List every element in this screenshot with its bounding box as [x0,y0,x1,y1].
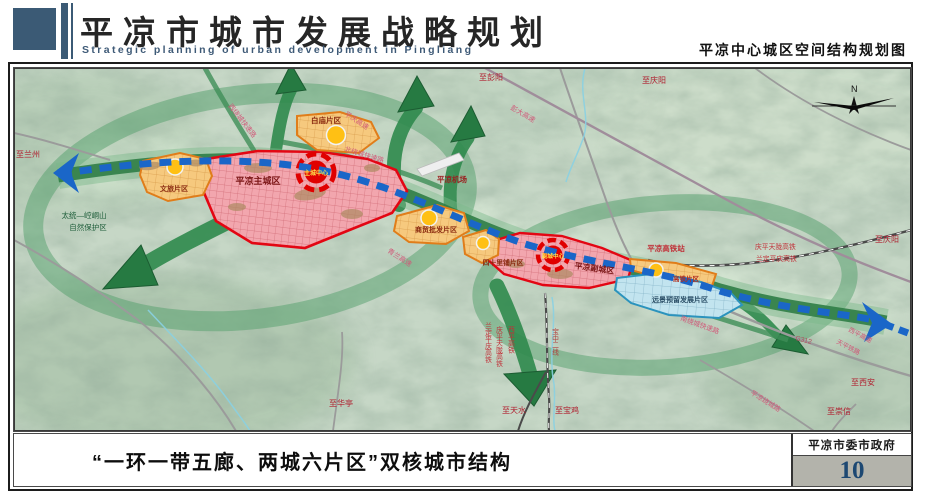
document-header: 平凉市城市发展战略规划 Strategic planning of urban … [0,0,925,62]
label-nature-reserve-2: 自然保护区 [69,222,107,232]
page-number: 10 [793,456,911,486]
label-to-huating: 至华亭 [329,398,353,408]
label-hsr-station: 平凉高铁站 [647,243,685,253]
compass-n-label: N [851,84,858,94]
label-nature-reserve-1: 太统—崆峒山 [62,210,107,220]
node-baimiao [327,126,346,145]
node-sishilipu [477,237,490,250]
label-to-qingyang-right: 至庆阳 [875,234,899,244]
label-landing-pingqing: 兰定平庆高铁 [756,254,797,263]
label-zone-yuanjing: 远景预留发展片区 [652,295,708,304]
label-to-baoji: 至宝鸡 [555,405,579,415]
label-airport: 平凉机场 [437,174,467,184]
label-zone-gaotie: 高铁片区 [673,274,700,283]
content-frame: 至兰州 至彭阳 至庆阳 至庆阳 至西安 至崇信 至华亭 至天水 至宝鸡 西绕城快… [8,62,913,491]
agency-label: 平凉市委市政府 [793,434,911,456]
label-zone-main-city: 平凉主城区 [235,175,280,186]
label-qingping-tianlong: 庆平天陇高铁 [755,242,796,251]
label-zone-sishilipu: 四十里铺片区 [483,258,524,267]
label-zone-shangmao: 商贸批发片区 [415,225,457,234]
label-to-chongxin: 至崇信 [827,406,851,416]
planning-document-page: 平凉市城市发展战略规划 Strategic planning of urban … [0,0,925,500]
label-zone-baimiao: 白庙片区 [311,115,341,125]
header-divider-bar [61,3,68,59]
label-to-qingyang-top: 至庆阳 [642,75,666,85]
label-to-tianshui: 至天水 [502,405,526,415]
node-shangmao [421,210,437,226]
label-to-lanzhou: 至兰州 [16,149,40,159]
structure-caption: “一环一带五廊、两城六片区”双核城市结构 [92,446,512,475]
label-to-xian: 至西安 [851,377,875,387]
document-subtitle-en: Strategic planning of urban development … [82,44,473,56]
page-number-box: 平凉市委市政府 10 [791,434,911,486]
map-figure-title: 平凉中心城区空间结构规划图 [699,40,907,60]
caption-cell: “一环一带五廊、两城六片区”双核城市结构 [14,434,791,486]
logo-square [13,8,56,50]
footer-strip: “一环一带五廊、两城六片区”双核城市结构 平凉市委市政府 10 [13,433,912,487]
header-divider-bar-thin [71,3,73,59]
label-to-pengyang: 至彭阳 [479,72,503,82]
label-sub-core: 副城中心 [542,252,565,260]
label-main-core: 主城中心 [304,169,328,177]
map-svg: 至兰州 至彭阳 至庆阳 至庆阳 至西安 至崇信 至华亭 至天水 至宝鸡 西绕城快… [14,68,911,431]
label-zone-wenlv: 文旅片区 [160,184,188,193]
planning-map: 至兰州 至彭阳 至庆阳 至庆阳 至西安 至崇信 至华亭 至天水 至宝鸡 西绕城快… [13,67,912,432]
